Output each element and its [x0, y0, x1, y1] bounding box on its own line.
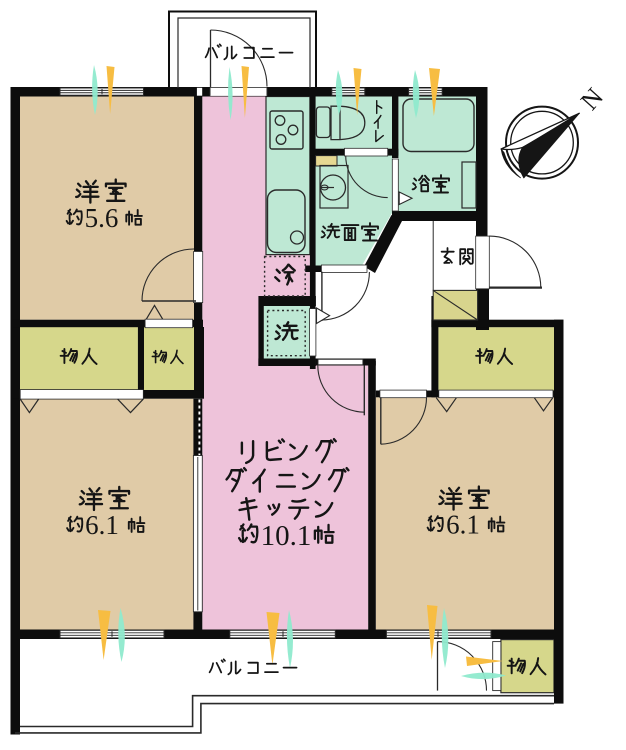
- svg-text:10.1: 10.1: [261, 520, 312, 552]
- svg-text:6.1: 6.1: [446, 510, 480, 540]
- svg-text:6.1: 6.1: [85, 510, 119, 540]
- svg-text:5.6: 5.6: [85, 203, 119, 233]
